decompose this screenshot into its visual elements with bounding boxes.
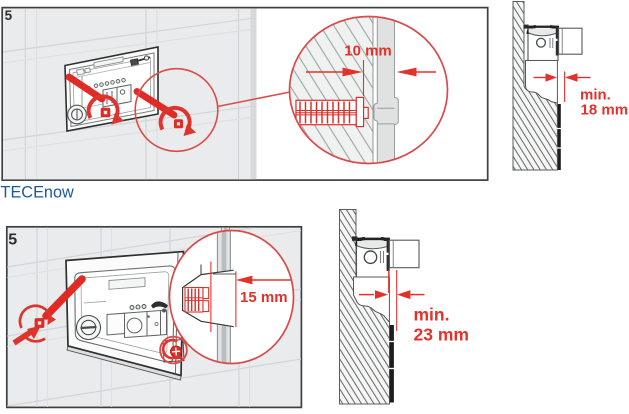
svg-text:18 mm: 18 mm bbox=[581, 101, 629, 118]
svg-text:5: 5 bbox=[8, 231, 17, 248]
svg-text:23 mm: 23 mm bbox=[414, 324, 469, 344]
svg-text:min.: min. bbox=[414, 304, 450, 324]
svg-text:TECEnow: TECEnow bbox=[1, 183, 75, 201]
svg-text:10 mm: 10 mm bbox=[344, 43, 392, 60]
svg-text:15 mm: 15 mm bbox=[240, 289, 288, 306]
svg-text:5: 5 bbox=[5, 8, 13, 23]
